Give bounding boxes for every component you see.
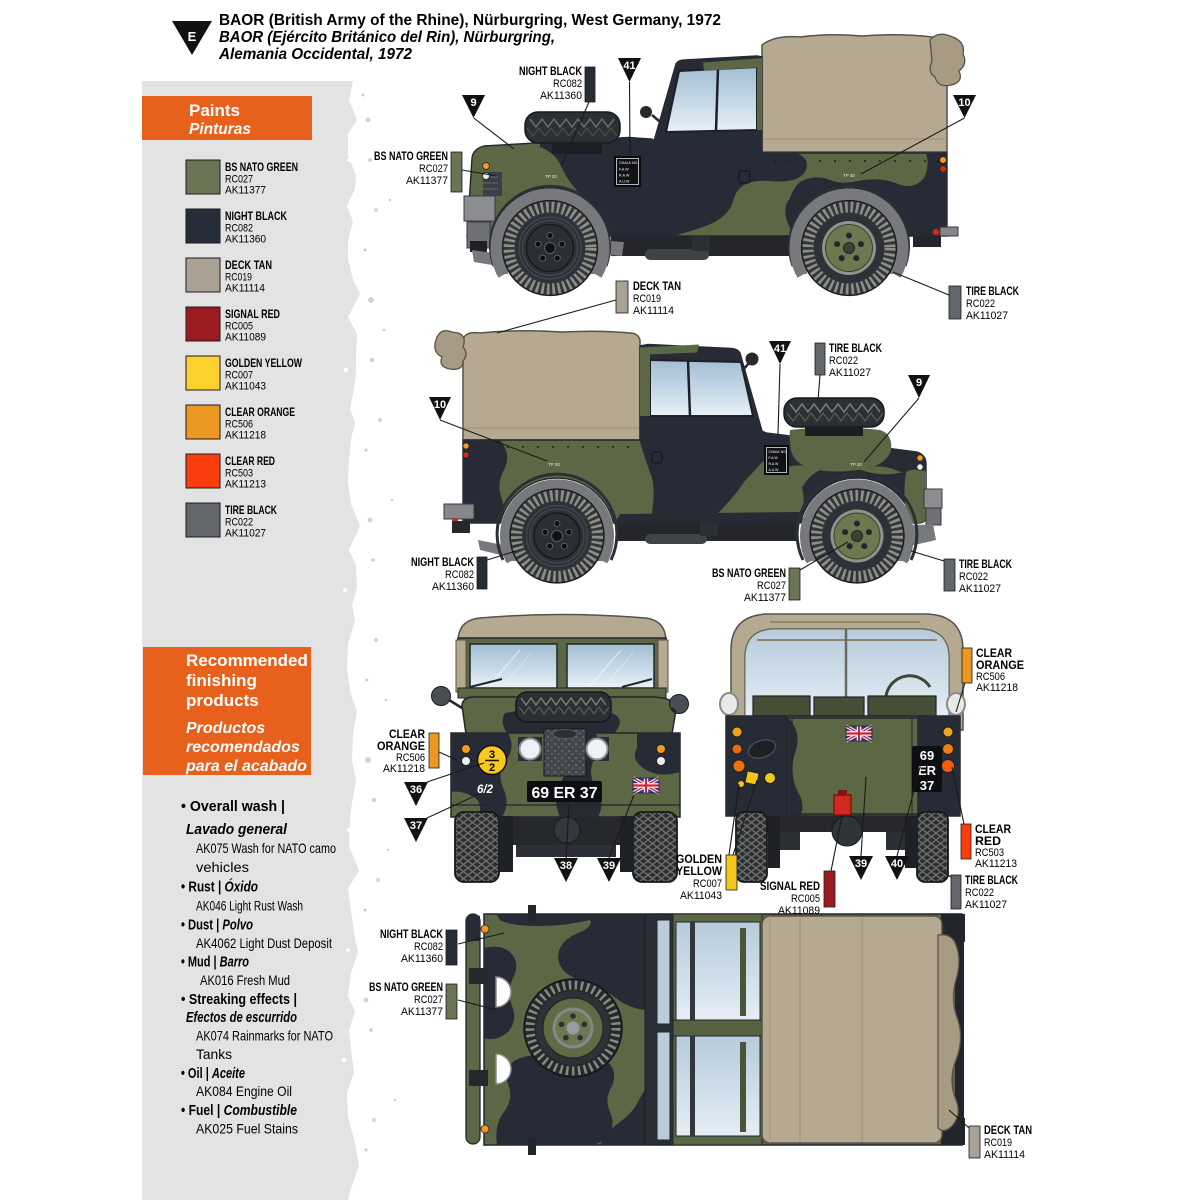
svg-text:10: 10 bbox=[434, 399, 446, 411]
svg-text:TP 20: TP 20 bbox=[545, 174, 557, 179]
svg-text:Alemania Occidental, 1972: Alemania Occidental, 1972 bbox=[218, 46, 412, 63]
svg-text:41: 41 bbox=[623, 60, 635, 72]
svg-text:• Oil | Aceite: • Oil | Aceite bbox=[181, 1066, 245, 1082]
svg-text:TIRE BLACK: TIRE BLACK bbox=[965, 873, 1018, 887]
svg-text:recomendados: recomendados bbox=[186, 739, 300, 756]
svg-text:38: 38 bbox=[560, 860, 572, 872]
svg-text:39: 39 bbox=[603, 860, 615, 872]
svg-text:AK074 Rainmarks for NATO: AK074 Rainmarks for NATO bbox=[196, 1029, 333, 1044]
svg-text:BS NATO GREEN: BS NATO GREEN bbox=[225, 160, 298, 174]
svg-text:Lavado general: Lavado general bbox=[186, 822, 288, 838]
svg-text:R.A.W: R.A.W bbox=[769, 462, 780, 466]
svg-text:Efectos de escurrido: Efectos de escurrido bbox=[186, 1010, 297, 1026]
svg-text:AK11027: AK11027 bbox=[966, 310, 1008, 322]
svg-text:9: 9 bbox=[916, 377, 922, 389]
svg-text:AK016 Fresh Mud: AK016 Fresh Mud bbox=[200, 973, 290, 988]
svg-text:37: 37 bbox=[410, 820, 422, 832]
svg-text:ORANGE: ORANGE bbox=[976, 658, 1024, 672]
svg-text:RC082: RC082 bbox=[445, 569, 474, 581]
svg-text:37: 37 bbox=[920, 778, 934, 793]
svg-text:RED: RED bbox=[975, 834, 1001, 848]
svg-text:69: 69 bbox=[920, 748, 934, 763]
svg-text:AK11043: AK11043 bbox=[225, 381, 266, 393]
svg-text:AK11377: AK11377 bbox=[225, 185, 266, 197]
svg-text:BS NATO GREEN: BS NATO GREEN bbox=[369, 980, 443, 994]
svg-text:40: 40 bbox=[891, 858, 903, 870]
svg-text:YELLOW: YELLOW bbox=[676, 864, 722, 878]
svg-text:AK11114: AK11114 bbox=[633, 305, 674, 317]
svg-text:SIGNAL RED: SIGNAL RED bbox=[225, 307, 280, 321]
svg-text:CLEAR ORANGE: CLEAR ORANGE bbox=[225, 405, 295, 419]
svg-text:A.U.W: A.U.W bbox=[769, 468, 780, 472]
svg-text:CLEAR RED: CLEAR RED bbox=[225, 454, 275, 468]
svg-text:NIGHT BLACK: NIGHT BLACK bbox=[519, 64, 582, 78]
svg-text:Productos: Productos bbox=[186, 720, 265, 737]
svg-text:AK11114: AK11114 bbox=[984, 1149, 1025, 1161]
svg-text:finishing: finishing bbox=[186, 671, 257, 690]
svg-text:NIGHT BLACK: NIGHT BLACK bbox=[225, 209, 287, 223]
svg-text:TIRE BLACK: TIRE BLACK bbox=[829, 341, 882, 355]
svg-text:F.A.W: F.A.W bbox=[619, 168, 629, 172]
svg-text:TIRE BLACK: TIRE BLACK bbox=[959, 557, 1012, 571]
svg-text:AK11114: AK11114 bbox=[225, 283, 265, 295]
svg-text:RC007: RC007 bbox=[693, 878, 722, 890]
svg-text:AK4062 Light Dust Deposit: AK4062 Light Dust Deposit bbox=[196, 936, 332, 951]
svg-text:2: 2 bbox=[489, 762, 495, 774]
svg-text:vehicles: vehicles bbox=[196, 860, 249, 875]
svg-text:Pinturas: Pinturas bbox=[189, 121, 251, 138]
svg-text:AK11377: AK11377 bbox=[406, 175, 448, 187]
svg-text:AK11218: AK11218 bbox=[225, 430, 266, 442]
svg-text:TP 30: TP 30 bbox=[843, 173, 855, 178]
svg-text:TP 20: TP 20 bbox=[850, 462, 862, 467]
svg-text:CHALK NO: CHALK NO bbox=[619, 161, 638, 165]
svg-text:DECK TAN: DECK TAN bbox=[984, 1123, 1032, 1137]
svg-text:RC027: RC027 bbox=[414, 994, 443, 1006]
svg-text:SIGNAL RED: SIGNAL RED bbox=[760, 879, 820, 893]
svg-text:AK025 Fuel Stains: AK025 Fuel Stains bbox=[196, 1122, 298, 1137]
svg-text:E: E bbox=[188, 29, 197, 44]
svg-text:AK11027: AK11027 bbox=[225, 528, 266, 540]
svg-text:39: 39 bbox=[855, 858, 867, 870]
svg-text:RC027: RC027 bbox=[419, 163, 448, 175]
svg-text:RC082: RC082 bbox=[414, 941, 443, 953]
svg-text:RC019: RC019 bbox=[633, 293, 661, 305]
svg-text:AK11218: AK11218 bbox=[383, 763, 425, 775]
svg-text:AK11360: AK11360 bbox=[401, 953, 443, 965]
svg-text:AK11043: AK11043 bbox=[680, 890, 722, 902]
svg-text:41: 41 bbox=[774, 343, 786, 355]
svg-text:TP 30: TP 30 bbox=[548, 462, 560, 467]
svg-text:36: 36 bbox=[410, 784, 422, 796]
svg-text:RC022: RC022 bbox=[959, 571, 988, 583]
svg-text:BAOR (British Army of the Rhin: BAOR (British Army of the Rhine), Nürbur… bbox=[219, 12, 721, 29]
svg-text:CHALK NO: CHALK NO bbox=[769, 450, 787, 454]
svg-text:RC022: RC022 bbox=[966, 298, 995, 310]
svg-text:• Fuel | Combustible: • Fuel | Combustible bbox=[181, 1103, 297, 1119]
svg-text:GOLDEN YELLOW: GOLDEN YELLOW bbox=[225, 356, 302, 370]
svg-text:RC082: RC082 bbox=[553, 78, 582, 90]
svg-text:• Streaking effects |: • Streaking effects | bbox=[181, 992, 297, 1008]
svg-text:ORANGE: ORANGE bbox=[377, 739, 425, 753]
svg-text:TIRE BLACK: TIRE BLACK bbox=[225, 503, 277, 517]
svg-text:AK11213: AK11213 bbox=[225, 479, 266, 491]
svg-text:DECK TAN: DECK TAN bbox=[633, 279, 681, 293]
svg-text:• Mud | Barro: • Mud | Barro bbox=[181, 955, 249, 971]
svg-text:• Rust | Óxido: • Rust | Óxido bbox=[181, 878, 258, 896]
svg-text:AK11360: AK11360 bbox=[540, 90, 582, 102]
svg-text:69 ER 37: 69 ER 37 bbox=[532, 785, 598, 802]
svg-text:AK11360: AK11360 bbox=[225, 234, 266, 246]
svg-text:9: 9 bbox=[470, 97, 476, 109]
svg-text:RC019: RC019 bbox=[984, 1137, 1012, 1149]
svg-text:3: 3 bbox=[489, 749, 495, 761]
svg-text:R.A.W: R.A.W bbox=[619, 174, 630, 178]
svg-text:BS NATO GREEN: BS NATO GREEN bbox=[712, 566, 786, 580]
svg-text:DECK TAN: DECK TAN bbox=[225, 258, 272, 272]
svg-text:AK11377: AK11377 bbox=[744, 592, 786, 604]
svg-text:AK084 Engine Oil: AK084 Engine Oil bbox=[196, 1084, 292, 1099]
svg-text:Tanks: Tanks bbox=[196, 1047, 232, 1062]
svg-text:A.U.W: A.U.W bbox=[619, 180, 630, 184]
svg-text:AK075 Wash for NATO camo: AK075 Wash for NATO camo bbox=[196, 841, 336, 856]
svg-text:AK11360: AK11360 bbox=[432, 581, 474, 593]
svg-text:RC005: RC005 bbox=[791, 893, 820, 905]
svg-text:AK11213: AK11213 bbox=[975, 858, 1017, 870]
svg-text:NIGHT BLACK: NIGHT BLACK bbox=[380, 927, 443, 941]
svg-text:Paints: Paints bbox=[189, 101, 240, 120]
svg-text:AK11027: AK11027 bbox=[965, 899, 1007, 911]
svg-text:• Dust | Polvo: • Dust | Polvo bbox=[181, 918, 253, 934]
svg-text:Recommended: Recommended bbox=[186, 651, 308, 670]
svg-text:para el acabado: para el acabado bbox=[185, 758, 307, 775]
svg-text:F.A.W: F.A.W bbox=[769, 456, 779, 460]
svg-text:AK046 Light Rust Wash: AK046 Light Rust Wash bbox=[196, 899, 303, 914]
svg-text:10: 10 bbox=[958, 97, 970, 109]
svg-text:AK11027: AK11027 bbox=[959, 583, 1001, 595]
svg-text:• Overall wash |: • Overall wash | bbox=[181, 799, 285, 815]
svg-text:TIRE BLACK: TIRE BLACK bbox=[966, 284, 1019, 298]
svg-text:RC027: RC027 bbox=[757, 580, 786, 592]
svg-text:RC022: RC022 bbox=[965, 887, 994, 899]
svg-text:AK11377: AK11377 bbox=[401, 1006, 443, 1018]
svg-text:6/2: 6/2 bbox=[477, 784, 494, 796]
svg-text:AK11218: AK11218 bbox=[976, 682, 1018, 694]
svg-text:BAOR (Ejército Británico del R: BAOR (Ejército Británico del Rin), Nürbu… bbox=[219, 29, 555, 46]
svg-text:products: products bbox=[186, 691, 259, 710]
svg-text:AK11027: AK11027 bbox=[829, 367, 871, 379]
svg-text:BS NATO GREEN: BS NATO GREEN bbox=[374, 149, 448, 163]
svg-text:NIGHT BLACK: NIGHT BLACK bbox=[411, 555, 474, 569]
svg-text:RC022: RC022 bbox=[829, 355, 858, 367]
svg-text:AK11089: AK11089 bbox=[778, 905, 820, 917]
svg-text:AK11089: AK11089 bbox=[225, 332, 266, 344]
